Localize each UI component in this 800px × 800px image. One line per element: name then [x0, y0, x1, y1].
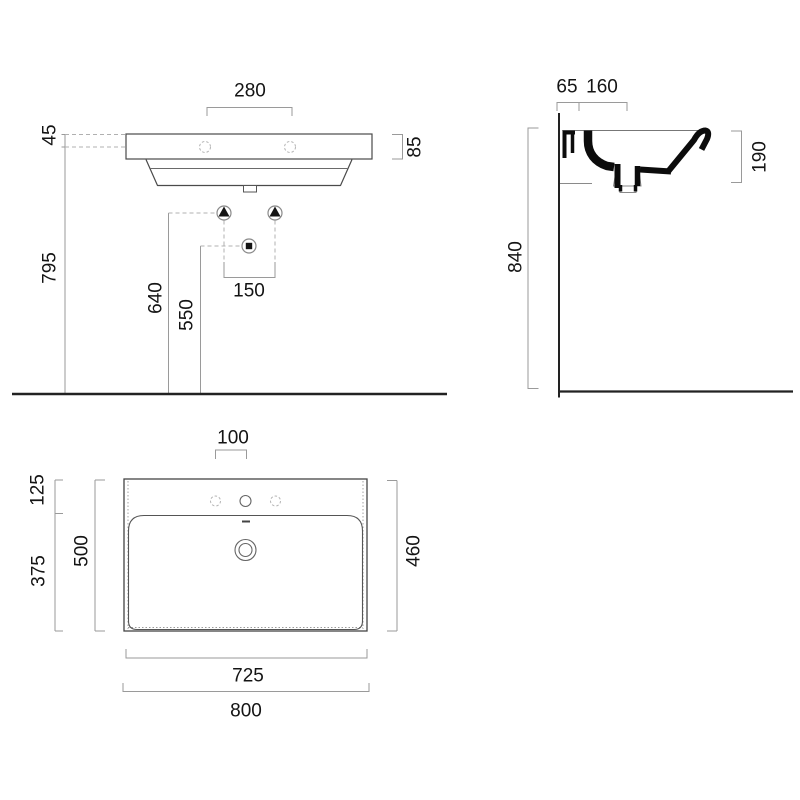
square-icon — [246, 243, 252, 249]
dim-bracket-150 — [224, 262, 275, 278]
drain-stub-outline — [620, 186, 636, 193]
basin-rim-front — [126, 134, 372, 159]
dim-label-hole-to-rim: 45 — [41, 124, 60, 145]
rim-outline-plan — [124, 479, 367, 631]
dim-bracket-85 — [392, 135, 403, 160]
bowl-bottom-right — [640, 170, 671, 172]
dim-label-overall-width: 800 — [230, 702, 262, 721]
water-supply-symbol-left — [217, 206, 231, 220]
water-supply-symbol-right — [268, 206, 282, 220]
dim-label-supply-spacing: 150 — [233, 282, 265, 301]
dim-label-back-ledge-depth: 125 — [29, 474, 48, 506]
back-wall-and-bowl — [588, 131, 614, 168]
side-dimension-lines — [528, 103, 742, 389]
dim-label-bowl-depth: 375 — [30, 555, 49, 587]
dim-label-hole-height: 795 — [41, 252, 60, 284]
washbasin-technical-drawing: 280 45 85 795 640 550 150 65 160 190 840… — [0, 0, 800, 800]
plan-view — [55, 450, 397, 692]
dim-label-hole-pitch: 100 — [217, 429, 249, 448]
dim-bracket-840 — [528, 128, 539, 389]
dim-label-fixing-to-waste: 160 — [586, 78, 618, 97]
dim-label-hole-spacing: 280 — [234, 82, 266, 101]
dim-bracket-725 — [126, 649, 367, 658]
dim-label-rim-height: 85 — [406, 136, 425, 157]
front-view — [12, 108, 447, 395]
dim-label-overall-depth: 500 — [73, 535, 92, 567]
drawing-canvas — [0, 0, 800, 800]
dim-bracket-100 — [216, 450, 247, 459]
basin-bowl-front — [146, 160, 352, 186]
dim-bracket-280 — [207, 108, 292, 117]
dim-label-basin-depth: 190 — [751, 141, 770, 173]
dim-label-waste-height: 550 — [178, 299, 197, 331]
basin-section-cut — [563, 131, 708, 192]
dim-label-rim-floor-height: 840 — [507, 241, 526, 273]
front-apron-edge — [669, 131, 709, 172]
drain-stub-front — [244, 186, 257, 193]
dim-label-wall-to-fixing: 65 — [556, 78, 577, 97]
waste-outlet-symbol — [242, 239, 256, 253]
dim-label-inner-depth: 460 — [405, 535, 424, 567]
dim-label-inner-width: 725 — [232, 667, 264, 686]
dim-bracket-65-160 — [557, 103, 627, 112]
dim-label-supply-height: 640 — [147, 282, 166, 314]
dim-bracket-190 — [731, 131, 742, 183]
section-thin-outlines — [560, 131, 708, 193]
